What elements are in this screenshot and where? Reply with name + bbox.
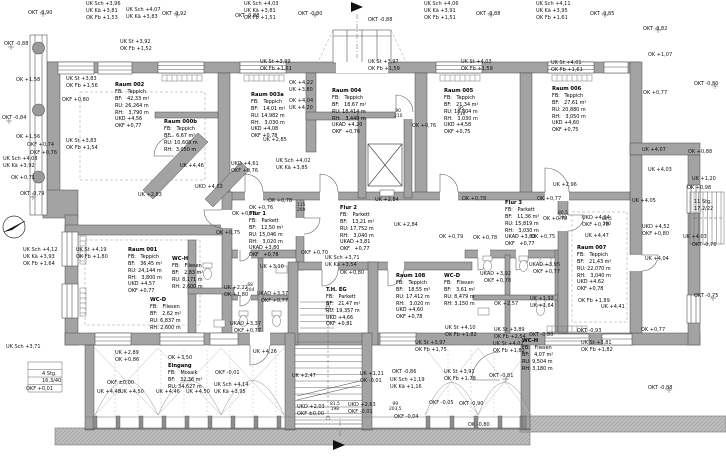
room-attribute: FB: Parkett: [505, 207, 539, 214]
room-name: Raum 005: [444, 88, 478, 94]
door-size-tag: 81,5198: [330, 403, 340, 413]
room-attribute: OKF +0,81: [326, 321, 360, 328]
elevation-label: OKF -0,04: [394, 415, 419, 420]
elevation-label: UK St +4,01: [551, 61, 582, 66]
elevation-label: OK +1,56: [16, 135, 40, 140]
room-attribute: BF: 14,01 m²: [251, 106, 285, 113]
room-attribute: UKAD +3,81: [340, 239, 374, 246]
elevation-label: UK St +4,02: [493, 342, 524, 347]
room-attribute: RH: 3,040 m: [340, 233, 374, 240]
room-attribute: FB: Fliesen: [522, 345, 553, 352]
elevation-label: OK -0,01: [360, 379, 382, 384]
door-size-tag: 115209: [297, 204, 305, 214]
room-attribute: BF: 3,61 m²: [444, 287, 475, 294]
elevation-label: UK Kä +1,16: [390, 385, 422, 390]
room-name: Raum 002: [115, 82, 149, 88]
door-size-tag: 95210: [457, 108, 465, 118]
elevation-label: OK +0,77: [641, 328, 665, 333]
room-name: WC-H: [172, 256, 203, 262]
room-name: Raum 108: [396, 273, 430, 279]
room-attribute: OKF +0,75: [552, 127, 586, 134]
room-attribute: RU: 26,264 m: [115, 103, 149, 110]
room-name: WC-H: [522, 338, 553, 344]
elevation-label: UK +2,22: [224, 286, 248, 291]
room-attribute: FB: Parkett: [340, 212, 374, 219]
elevation-label: OK -0,80: [468, 423, 490, 428]
room-label-raum-007: Raum 007FB: TeppichBF: 21,43 m²RU: 22,07…: [577, 245, 611, 293]
room-name: Raum 006: [552, 86, 586, 92]
room-attribute: RH: 2,600 m: [172, 284, 203, 291]
door-size-value: 210: [394, 115, 402, 120]
room-name: Flur 2: [340, 205, 374, 211]
room-attribute: UKAD +4,20: [332, 122, 366, 129]
elevation-label: OK Fb +1,61: [551, 68, 583, 73]
room-attribute: RH: 3,020 m: [396, 301, 430, 308]
elevation-label: UK +4,03: [683, 235, 707, 240]
room-attribute: FB: Teppich: [115, 89, 149, 96]
room-attribute: BF: 21,47 m²: [326, 301, 360, 308]
elevation-label: OK +0,77: [537, 197, 561, 202]
door-size-value: 204: [246, 289, 254, 294]
room-name: WC-D: [150, 297, 181, 303]
door-size-tag: 99203,5: [389, 403, 402, 413]
elevation-label: OK Fb +1,56: [66, 84, 98, 89]
room-label-raum-006: Raum 006FB: TeppichBF: 27,61 m²RU: 20,88…: [552, 86, 586, 134]
room-attribute: BF: 12,50 m²: [249, 225, 283, 232]
room-attribute: FB: Fliesen: [444, 280, 475, 287]
room-attribute: FB: Teppich: [128, 254, 162, 261]
door-size-tag: 90210: [394, 110, 402, 120]
room-attribute: FB: Fliesen: [172, 263, 203, 270]
elevation-label: OK +0,86: [115, 358, 139, 363]
elevation-label: UK St +3,81: [581, 341, 612, 346]
room-attribute: RU: 19,357 m: [326, 308, 360, 315]
room-attribute: RU: 17,752 m: [340, 226, 374, 233]
elevation-label: UK +2,89: [115, 351, 139, 356]
elevation-label: UK Kä +3,81: [86, 9, 118, 14]
elevation-label: OKT -0,88: [476, 12, 500, 17]
elevation-label: OK +0,88: [688, 150, 712, 155]
elevation-label: UK +4,07: [642, 148, 666, 153]
elevation-label: UK +2,96: [553, 183, 577, 188]
room-label-raum-000b: Raum 000bFB: TeppichBF: 6,67 m²RU: 10,60…: [164, 119, 198, 153]
elevation-label: UK Kä +3,95: [536, 9, 568, 14]
room-attribute: FB: Teppich: [164, 126, 198, 133]
elevation-label: UK St +3,92: [120, 40, 151, 45]
room-attribute: BF: 13,21 m²: [340, 219, 374, 226]
elevation-label: OK +0,78: [232, 212, 256, 217]
room-attribute: RU: 6,837 m: [150, 318, 181, 325]
room-name: Raum 001: [128, 247, 162, 253]
room-attribute: BF: 36,45 m²: [128, 261, 162, 268]
elevation-label: OKT -0,88: [4, 42, 28, 47]
elevation-label: OK +4,04: [289, 99, 313, 104]
elevation-label: UK Sch +4,14: [214, 383, 249, 388]
room-attribute: OKF +0,77: [505, 241, 539, 248]
elevation-label: OK Fb +1,59: [368, 67, 400, 72]
room-label-raum-004: Raum 004FB: TeppichBF: 18,67 m²RU: 18,41…: [332, 88, 366, 136]
elevation-label: OK +0,78: [473, 236, 497, 241]
elevation-label: OKF +0,77: [261, 299, 288, 304]
elevation-label: OKT -0,88: [368, 18, 392, 23]
room-attribute: BF: 6,67 m²: [164, 133, 198, 140]
elevation-label: OKF -0,01: [215, 371, 240, 376]
elevation-label: OK Fb +1,82: [493, 349, 525, 354]
elevation-label: OKF ±0,00: [297, 412, 324, 417]
door-size-tag: 68204: [246, 284, 254, 294]
elevation-label: OKF +0,78: [484, 279, 511, 284]
elevation-label: UKAD +3,37: [230, 322, 261, 327]
room-attribute: RH: 3,050 m: [552, 114, 586, 121]
room-name: WC-D: [444, 273, 475, 279]
elevation-label: UK St +3,91: [444, 370, 475, 375]
room-attribute: UKD +4,62: [577, 279, 611, 286]
room-label-t-h-eg: T.H. EGFB: ParkettBF: 21,47 m²RU: 19,357…: [326, 287, 360, 328]
room-attribute: FB: Teppich: [332, 95, 366, 102]
room-attribute: RU: 8,171 m: [172, 277, 203, 284]
room-attribute: BF: 32,36 m²: [168, 377, 202, 384]
room-attribute: FB: Teppich: [444, 95, 478, 102]
elevation-label: UKAD +3,92: [480, 272, 511, 277]
room-label-flur-3: Flur 3FB: ParkettBF: 11,36 m²RU: 15,819 …: [505, 200, 539, 248]
elevation-label: UK Sch +3,96: [86, 2, 121, 7]
room-attribute: UKAD +3,80: [249, 245, 283, 252]
room-attribute: BF: 4,07 m²: [522, 352, 553, 359]
room-attribute: FB: Teppich: [577, 252, 611, 259]
door-size-value: 210: [457, 113, 465, 118]
elevation-label: UK St +3,83: [66, 77, 97, 82]
elevation-label: 17,2/22: [694, 207, 713, 212]
elevation-label: OKT -0,75: [694, 294, 718, 299]
elevation-label: UKAD +3,37: [257, 292, 288, 297]
elevation-label: OKF +0,77: [234, 329, 261, 334]
elevation-label: OK +1,07: [648, 53, 672, 58]
room-name: Raum 000b: [164, 119, 198, 125]
elevation-label: OKT -0,88: [648, 386, 672, 391]
elevation-label: OK +0,76: [412, 124, 436, 129]
elevation-label: UK +4,48: [97, 390, 121, 395]
elevation-label: OK +0,77: [643, 91, 667, 96]
room-attribute: UKD +4,66: [326, 315, 360, 322]
room-attribute: OKF +0,78: [577, 286, 611, 293]
room-attribute: FB: Mosaik: [168, 370, 202, 377]
elevation-label: OKF +0,74: [27, 143, 54, 148]
elevation-label: UK St +3,97: [415, 341, 446, 346]
room-attribute: UKD +4,57: [128, 281, 162, 288]
door-size-value: 200: [602, 223, 612, 228]
room-attribute: RU: 24,144 m: [128, 268, 162, 275]
room-label-raum-108: Raum 108FB: TeppichBF: 18,55 m²RU: 17,41…: [396, 273, 430, 321]
room-attribute: BF: 18,55 m²: [396, 287, 430, 294]
elevation-label: UK +1,20: [692, 177, 716, 182]
elevation-label: OKT -0,80: [298, 12, 322, 17]
room-label-wc-h: WC-HFB: FliesenBF: 4,07 m²RU: 9,504 mRH:…: [522, 338, 553, 372]
elevation-label: OK Fb +2,54: [494, 335, 526, 340]
elevation-label: OKF -0,01: [348, 410, 373, 415]
elevation-label: OK +0,75: [531, 235, 555, 240]
elevation-label: OKT -0,82: [643, 27, 667, 32]
elevation-label: UK Sch +4,06: [424, 2, 459, 7]
elevation-label: UK +4,26: [253, 350, 277, 355]
elevation-label: UK +2,85: [263, 138, 287, 143]
elevation-label: UK +4,41: [601, 305, 625, 310]
elevation-label: OKT -0,79: [20, 192, 44, 197]
elevation-label: UKD +2,03: [297, 405, 325, 410]
elevation-label: OK Fb +1,61: [536, 16, 568, 21]
room-attribute: RH: 3,030 m: [251, 120, 285, 127]
room-name: Raum 003a: [251, 92, 285, 98]
elevation-label: OKT -0,81: [489, 374, 513, 379]
elevation-label: OKT -0,92: [162, 12, 186, 17]
elevation-label: OK +0,78: [462, 197, 486, 202]
room-label-wc-d: WC-DFB: FliesenBF: 3,61 m²RU: 8,479 mRH:…: [444, 273, 475, 307]
elevation-label: UKD +4,61: [231, 162, 259, 167]
door-size-value: 200: [558, 217, 568, 222]
elevation-label: OKF ±0,00: [107, 381, 134, 386]
elevation-label: UKD +2,63: [348, 403, 376, 408]
room-attribute: UKD +4,58: [444, 122, 478, 129]
elevation-label: OK +0,71: [11, 176, 35, 181]
elevation-label: UK Sch +3,71: [325, 256, 360, 261]
room-label-wc-d: WC-DFB: FliesenBF: 2,62 m²RU: 6,837 mRH:…: [150, 297, 181, 331]
elevation-label: UK +1,21: [360, 372, 384, 377]
elevation-label: UK St +4,19: [76, 248, 107, 253]
door-size-value: 203,5: [389, 408, 402, 413]
elevation-label: OKF +0,01: [26, 387, 53, 392]
elevation-label: UK +4,46: [156, 390, 180, 395]
room-attribute: RH: 2,600 m: [150, 325, 181, 332]
elevation-label: OK Fb +1,82: [581, 348, 613, 353]
room-attribute: OKF +0,75: [444, 129, 478, 136]
elevation-label: OKT -0,90: [459, 402, 483, 407]
elevation-label: OK +2,57: [494, 302, 518, 307]
room-attribute: FB: Teppich: [396, 280, 430, 287]
room-attribute: RH: 3,790 m: [115, 110, 149, 117]
room-attribute: BF: 42,33 m²: [115, 96, 149, 103]
elevation-label: UK +4,20: [289, 106, 313, 111]
room-name: Raum 007: [577, 245, 611, 251]
room-attribute: RH: 3,440 m: [332, 116, 366, 123]
room-attribute: OKF +0,77: [115, 123, 149, 130]
elevation-label: UK +4,46: [180, 164, 204, 169]
elevation-label: UK +4,50: [120, 390, 144, 395]
elevation-label: OKF -0,05: [429, 401, 454, 406]
room-attribute: RU: 8,479 m: [444, 294, 475, 301]
elevation-label: UK +3,10: [260, 265, 284, 270]
room-attribute: UKD +4,56: [115, 116, 149, 123]
room-attribute: BF: 2,83 m²: [172, 270, 203, 277]
elevation-label: UK Sch +1,19: [390, 378, 425, 383]
elevation-label: 4 Stg.: [42, 372, 57, 377]
elevation-label: UK Sch +4,08: [3, 157, 38, 162]
elevation-label: OK +4,22: [289, 81, 313, 86]
elevation-label: OKT -0,88: [235, 14, 259, 19]
elevation-label: UK Kä +3,83: [126, 15, 158, 20]
room-attribute: RU: 17,412 m: [396, 294, 430, 301]
room-attribute: RU: 15,819 m: [505, 221, 539, 228]
room-attribute: RU: 14,982 m: [251, 113, 285, 120]
elevation-label: UK +3,80: [289, 88, 313, 93]
room-label-raum-001: Raum 001FB: TeppichBF: 36,45 m²RU: 24,14…: [128, 247, 162, 295]
elevation-label: 16,3/40: [42, 379, 61, 384]
room-label-flur-1: Flur 1FB: ParkettBF: 12,50 m²RU: 15,046 …: [249, 211, 283, 259]
elevation-label: UK +4,05: [632, 199, 656, 204]
elevation-label: OK +0,75: [216, 231, 240, 236]
room-name: Raum 004: [332, 88, 366, 94]
elevation-label: UK +4,03: [648, 168, 672, 173]
room-attribute: OKF +0,77: [340, 246, 374, 253]
room-name: Flur 3: [505, 200, 539, 206]
elevation-label: UK +1,92: [530, 297, 554, 302]
room-attribute: BF: 21,43 m²: [577, 259, 611, 266]
elevation-label: UK Sch +4,11: [536, 2, 571, 7]
elevation-label: UK Kä +3,85: [276, 166, 308, 171]
room-attribute: FB: Teppich: [251, 99, 285, 106]
elevation-label: OKF +0,80: [62, 98, 89, 103]
room-attribute: RH: 3,040 m: [577, 273, 611, 280]
elevation-label: UK Kä +3,93: [23, 255, 55, 260]
elevation-label: OK +0,78: [268, 199, 292, 204]
elevation-label: UK St +3,99: [260, 60, 291, 65]
elevation-label: OKT -0,90: [28, 11, 52, 16]
room-attribute: OKF +0,78: [249, 252, 283, 259]
room-attribute: FB: Parkett: [326, 294, 360, 301]
elevation-label: 11 Stg.: [694, 200, 712, 205]
room-attribute: FB: Parkett: [249, 218, 283, 225]
elevation-label: UK +2,83: [138, 193, 162, 198]
elevation-label: UK +2,47: [292, 374, 316, 379]
elevation-label: UKD +4,63: [195, 185, 223, 190]
room-attribute: RU: 10,608 m: [164, 140, 198, 147]
elevation-label: OK +1,58: [16, 78, 40, 83]
elevation-label: UK Sch +4,03: [244, 2, 279, 7]
room-attribute: RU: 9,504 m: [522, 359, 553, 366]
room-attribute: RH: 3,800 m: [128, 275, 162, 282]
room-attribute: RU: 20,880 m: [552, 107, 586, 114]
elevation-label: OK Fb +1,52: [120, 47, 152, 52]
elevation-label: OKT -0,93: [577, 329, 601, 334]
elevation-label: OK +3,50: [168, 356, 192, 361]
elevation-label: OKT -0,84: [2, 116, 26, 121]
elevation-label: OKT -0,80: [694, 82, 718, 87]
room-attribute: RH: 3,050 m: [164, 147, 198, 154]
room-attribute: FB: Fliesen: [150, 304, 181, 311]
elevation-label: UK Kä +3,54: [325, 263, 357, 268]
room-label-wc-h: WC-HFB: FliesenBF: 2,83 m²RU: 8,171 mRH:…: [172, 256, 203, 290]
room-attribute: RH: 3,020 m: [249, 239, 283, 246]
room-attribute: RU: 22,070 m: [577, 266, 611, 273]
elevation-label: OK +1,80: [224, 293, 248, 298]
elevation-label: OK Fb +1,75: [415, 348, 447, 353]
elevation-label: OK +0,80: [340, 271, 364, 276]
elevation-label: OKT -0,86: [392, 370, 416, 375]
elevation-label: UK +4,04: [645, 257, 669, 262]
elevation-label: UK Kä +3,91: [424, 9, 456, 14]
room-attribute: FB: Teppich: [552, 93, 586, 100]
room-attribute: RH: 3,180 m: [522, 366, 553, 373]
elevation-label: OK +0,98: [687, 186, 711, 191]
elevation-label: UK St +4,10: [445, 326, 476, 331]
room-name: T.H. EG: [326, 287, 360, 293]
floor-plan-sheet: Raum 002FB: TeppichBF: 42,33 m²RU: 26,26…: [0, 0, 726, 460]
elevation-label: OK Fb +1,54: [66, 146, 98, 151]
elevation-label: OK Fb +1,59: [461, 67, 493, 72]
elevation-label: OKF +0,77: [533, 270, 560, 275]
room-name: Eingang: [168, 363, 202, 369]
elevation-label: UK Kä +3,95: [214, 390, 246, 395]
elevation-label: OKF +0,80: [642, 232, 669, 237]
elevation-label: OKF +0,76: [231, 169, 258, 174]
elevation-label: UK Kä +3,92: [3, 164, 35, 169]
door-size-tag: 80,5200: [602, 218, 612, 228]
elevation-label: UK +4,47: [585, 234, 609, 239]
elevation-label: UK Sch +3,71: [6, 345, 41, 350]
room-attribute: OKF +0,76: [332, 129, 366, 136]
elevation-label: UK St +3,89: [494, 328, 525, 333]
elevation-label: OKF +0,70: [301, 251, 328, 256]
elevation-label: OKT -0,80: [529, 333, 553, 338]
elevation-label: UK St +4,03: [461, 60, 492, 65]
elevation-label: OK Fb +1,82: [445, 333, 477, 338]
room-attribute: RU: 15,046 m: [249, 232, 283, 239]
elevation-label: UKAD +3,95: [529, 263, 560, 268]
elevation-label: UK St +3,83: [66, 139, 97, 144]
elevation-label: OK Fb +1,51: [424, 16, 456, 21]
room-attribute: BF: 2,62 m²: [150, 311, 181, 318]
elevation-label: OK +0,79: [439, 235, 463, 240]
elevation-label: UK +2,84: [375, 198, 399, 203]
room-attribute: OKF +0,77: [128, 288, 162, 295]
elevation-label: UK +1,64: [530, 304, 554, 309]
elevation-label: OK Fb +1,61: [260, 67, 292, 72]
room-attribute: UKD +4,60: [552, 120, 586, 127]
room-attribute: BF: 18,67 m²: [332, 102, 366, 109]
elevation-label: UK +4,50: [186, 390, 210, 395]
room-attribute: BF: 27,61 m²: [552, 100, 586, 107]
elevation-label: UK Sch +4,12: [23, 248, 58, 253]
elevation-label: OKT -0,85: [590, 12, 614, 17]
elevation-label: UKD +4,52: [642, 225, 670, 230]
room-label-raum-003a: Raum 003aFB: TeppichBF: 14,01 m²RU: 14,9…: [251, 92, 285, 140]
room-attribute: RH: 3,150 m: [444, 301, 475, 308]
elevation-label: OK Fb +1,64: [23, 262, 55, 267]
room-attribute: UKD +4,60: [396, 307, 430, 314]
room-attribute: RU: 18,414 m: [332, 109, 366, 116]
room-label-raum-002: Raum 002FB: TeppichBF: 42,33 m²RU: 26,26…: [115, 82, 149, 130]
elevation-label: OKT -0,76: [692, 243, 716, 248]
elevation-label: UK Sch +4,07: [126, 8, 161, 13]
door-size-value: 209: [297, 209, 305, 214]
elevation-label: OK Fb +1,78: [444, 377, 476, 382]
room-attribute: OKF +0,78: [396, 314, 430, 321]
elevation-label: UK +2,84: [394, 223, 418, 228]
room-label-eingang: EingangFB: MosaikBF: 32,36 m²RU: 34,627 …: [168, 363, 202, 391]
elevation-label: UK Sch +4,02: [276, 159, 311, 164]
door-size-value: 198: [330, 408, 340, 413]
elevation-label: UK St +3,97: [368, 60, 399, 65]
room-attribute: UKD +4,08: [251, 126, 285, 133]
elevation-label: OK Fb +1,53: [86, 16, 118, 21]
room-attribute: BF: 11,36 m²: [505, 214, 539, 221]
label-layer: Raum 002FB: TeppichBF: 42,33 m²RU: 26,26…: [0, 0, 726, 460]
elevation-label: OK Fb +1,80: [76, 255, 108, 260]
door-size-tag: 80,5200: [558, 212, 568, 222]
room-label-flur-2: Flur 2FB: ParkettBF: 13,21 m²RU: 17,752 …: [340, 205, 374, 253]
